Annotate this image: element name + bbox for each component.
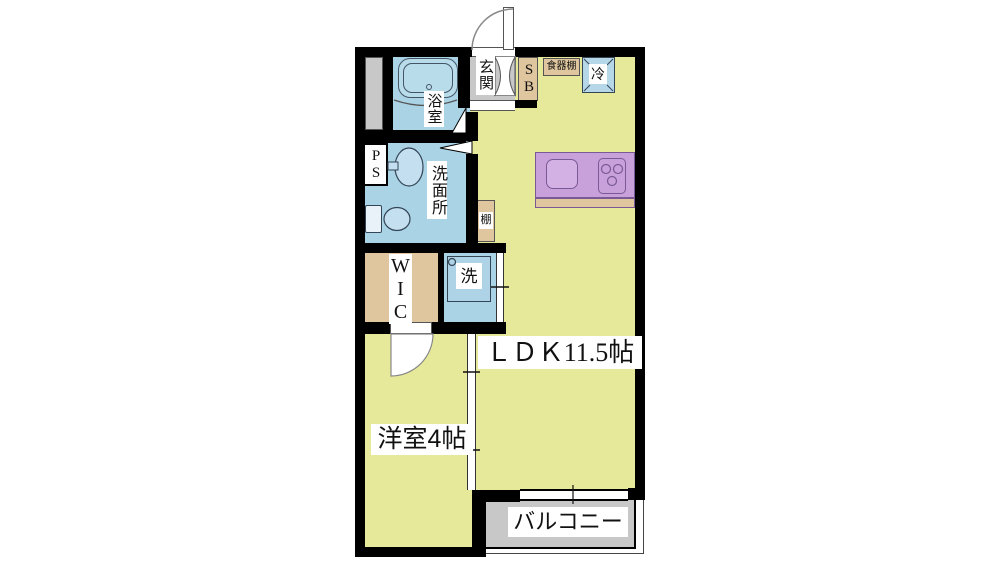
wall-bottom xyxy=(355,547,486,557)
cupboard-label: 食器棚 xyxy=(544,61,579,73)
ldk-label: ＬＤＫ11.5帖 xyxy=(478,336,642,369)
wall-top-right xyxy=(515,47,645,57)
floor-plan: 玄関 SB 食器棚 冷 浴室 PS 洗面所 WIC 洗 棚 ＬＤＫ11.5帖 洋… xyxy=(0,0,1000,562)
washing-machine-label: 洗 xyxy=(456,263,482,289)
shelf-label: 棚 xyxy=(479,212,493,229)
bathroom-label: 浴室 xyxy=(424,91,444,127)
wall-washroom-bottom xyxy=(355,243,506,253)
wic-label: WIC xyxy=(389,254,412,324)
balcony-label: バルコニー xyxy=(508,507,628,537)
wall-below-laundry xyxy=(432,322,506,334)
duct-space xyxy=(365,57,383,130)
kitchen-counter-edge xyxy=(535,198,635,208)
wall-below-shoebox xyxy=(515,100,537,108)
wall-washroom-right-upper xyxy=(466,112,478,141)
sliding-partition xyxy=(467,334,476,490)
wall-below-wic xyxy=(355,322,390,334)
entry-door-leaf xyxy=(503,7,514,50)
wall-balcony-left xyxy=(472,490,486,551)
wall-balcony-right-corner xyxy=(628,488,645,500)
wall-duct-right xyxy=(383,47,393,143)
entrance-step xyxy=(470,100,515,111)
western-room-label: 洋室4帖 xyxy=(371,424,473,455)
toilet-tank xyxy=(365,205,382,233)
kitchen-sink xyxy=(546,159,578,189)
wall-right xyxy=(635,47,645,500)
wall-bath-entrance xyxy=(458,47,470,108)
entrance-door-frame xyxy=(494,56,516,96)
shoe-box-label: SB xyxy=(520,60,537,98)
washroom-label: 洗面所 xyxy=(427,161,447,219)
bathtub-inner xyxy=(403,63,453,93)
laundry-opening xyxy=(496,253,504,322)
wall-washroom-right-lower xyxy=(466,154,478,253)
wall-top-left xyxy=(355,47,472,57)
balcony-window xyxy=(520,489,628,501)
wall-balcony-top-stub xyxy=(486,490,520,502)
wall-bath-bottom xyxy=(355,130,466,143)
wall-wic-laundry xyxy=(438,247,444,334)
wall-left xyxy=(355,47,365,557)
refrigerator-label: 冷 xyxy=(589,64,607,84)
pipe-space-label: PS xyxy=(367,147,384,182)
entrance-label: 玄関 xyxy=(476,55,495,95)
stove xyxy=(598,158,626,194)
